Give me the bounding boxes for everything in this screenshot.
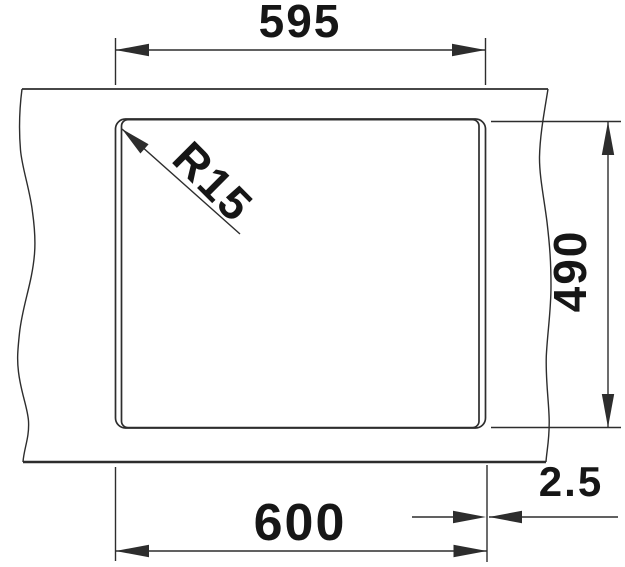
dim-side-offset-arrow-left: [453, 511, 486, 523]
dim-side-offset: 2.5: [412, 458, 618, 523]
dim-right-height-arrow-bottom: [602, 394, 614, 428]
dim-right-height-label: 490: [544, 230, 596, 313]
countertop-left-break-edge: [18, 89, 35, 462]
dim-top-width: 595: [116, 0, 486, 85]
technical-drawing-canvas: 595 490 600 2.5: [0, 0, 625, 567]
dim-top-width-label: 595: [259, 0, 342, 47]
countertop-outline: [18, 89, 551, 462]
dim-bottom-width-arrow-right: [454, 545, 488, 557]
dim-corner-radius: R15: [122, 129, 264, 234]
dim-top-width-arrow-right: [452, 44, 486, 56]
drawing-svg: 595 490 600 2.5: [0, 0, 625, 567]
dim-side-offset-label: 2.5: [539, 458, 603, 505]
dim-bottom-width-label: 600: [254, 494, 347, 552]
dim-bottom-width: 600: [116, 465, 488, 562]
dim-side-offset-arrow-right: [489, 511, 522, 523]
dim-corner-radius-label: R15: [163, 131, 264, 232]
dim-right-height-arrow-top: [602, 122, 614, 156]
dim-bottom-width-arrow-left: [116, 545, 150, 557]
dim-top-width-arrow-left: [116, 44, 150, 56]
dim-right-height: 490: [491, 122, 621, 428]
